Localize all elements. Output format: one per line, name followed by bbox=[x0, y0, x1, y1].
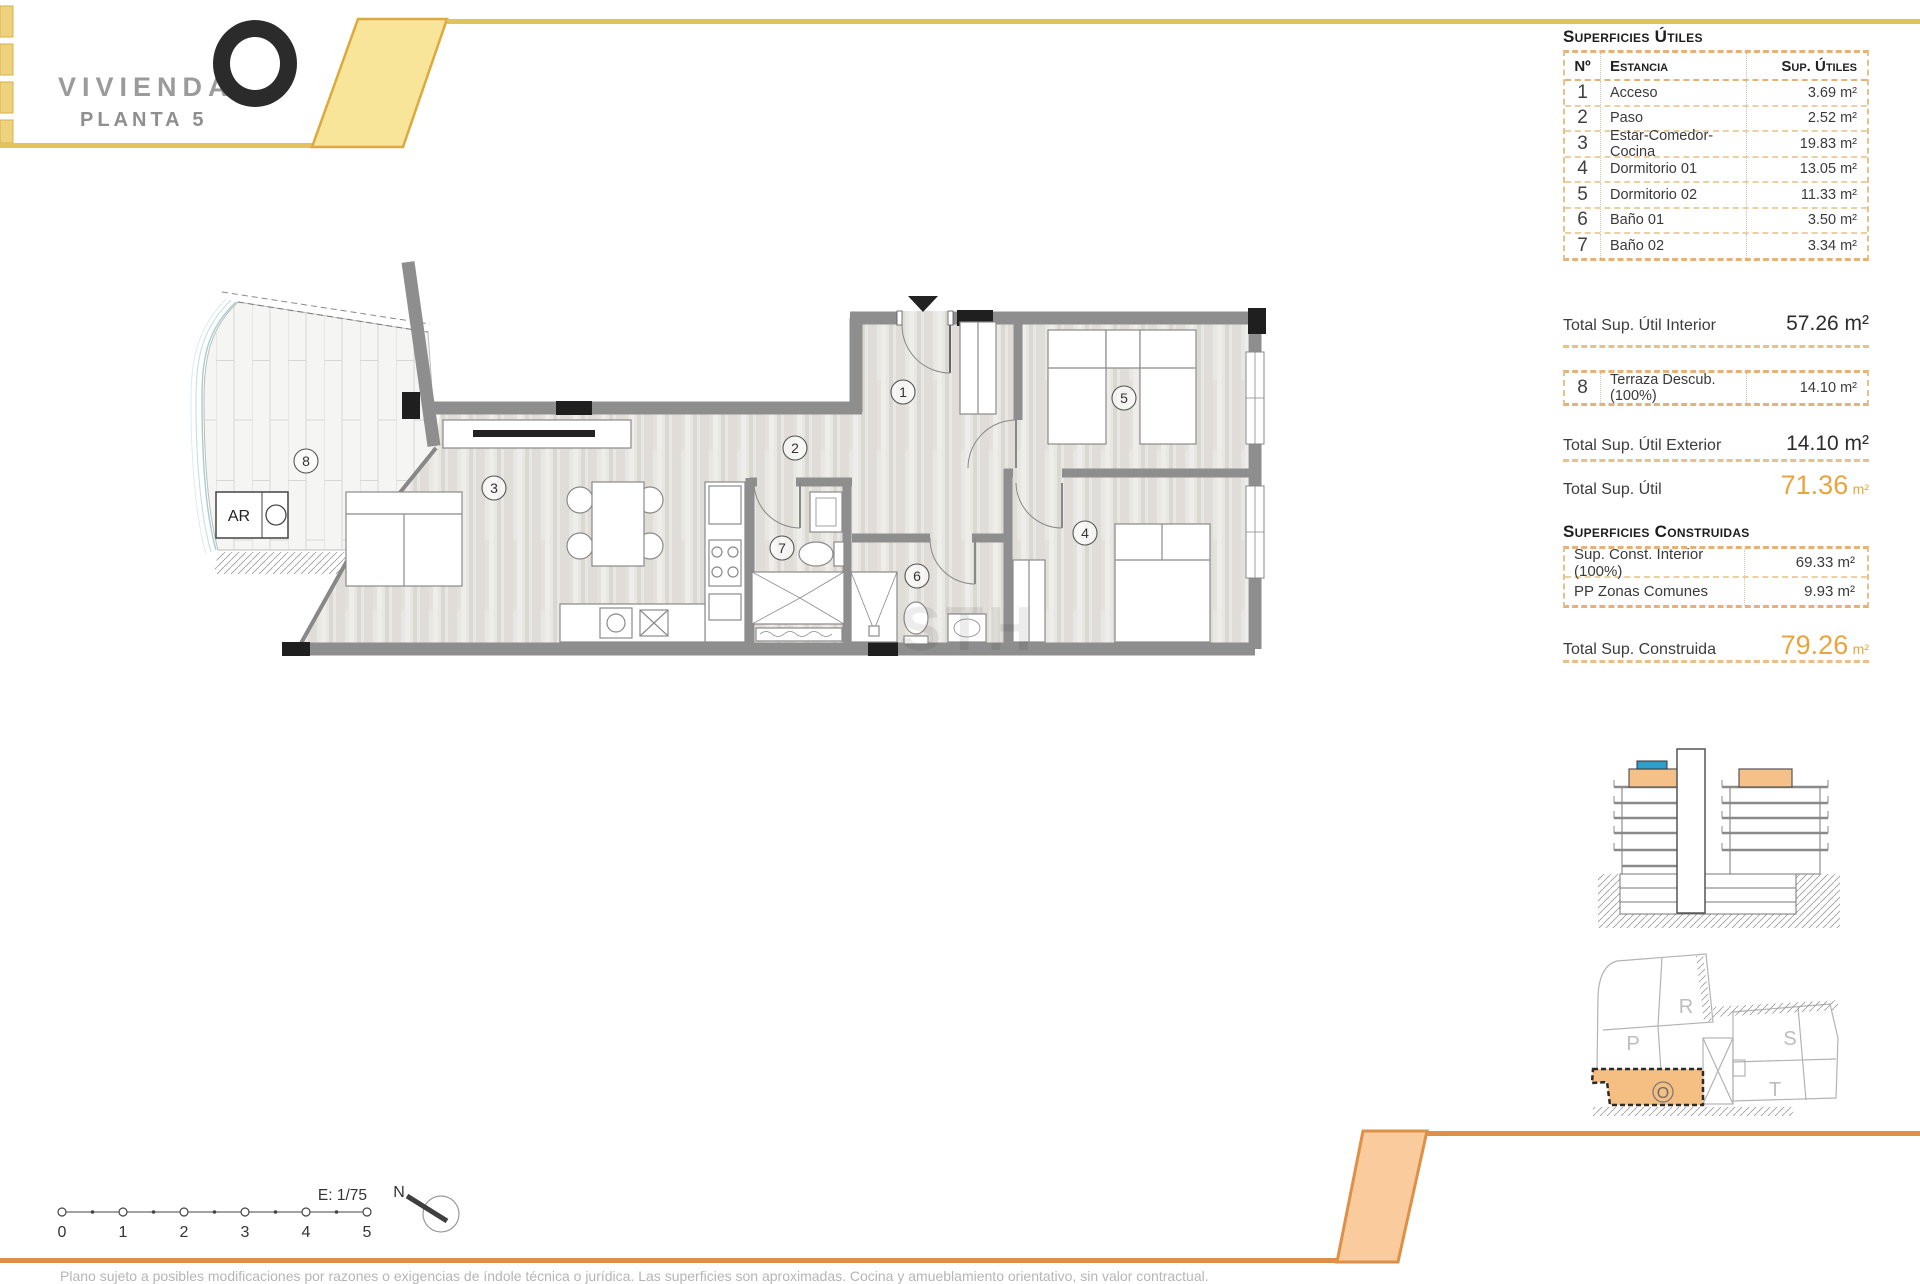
table-row: 4 Dormitorio 01 13.05 m² bbox=[1565, 158, 1867, 184]
pillar bbox=[1248, 308, 1266, 334]
built-title: Superficies Construidas bbox=[1563, 522, 1869, 542]
toilet bbox=[799, 542, 833, 566]
cell-sup: 14.10 m² bbox=[1747, 373, 1865, 403]
kitchen-counter bbox=[705, 482, 745, 642]
total-interior-line: Total Sup. Útil Interior 57.26 m² bbox=[1563, 312, 1869, 336]
room-label-6: 6 bbox=[905, 564, 929, 588]
total-built-line: Total Sup. Construida 79.26 m² bbox=[1563, 630, 1869, 661]
unit-letter-o: O bbox=[1657, 1085, 1669, 1102]
pillar bbox=[868, 642, 898, 656]
room-label-1: 1 bbox=[891, 380, 915, 404]
pillar bbox=[556, 401, 592, 415]
table-row: 8 Terraza Descub.(100%) 14.10 m² bbox=[1565, 373, 1867, 403]
building-section-diagram bbox=[1598, 749, 1840, 928]
room-label-2: 2 bbox=[783, 436, 807, 460]
surfaces-title: Superficies Útiles bbox=[1563, 27, 1869, 47]
cell-room: Paso bbox=[1601, 107, 1747, 131]
total-exterior-line: Total Sup. Útil Exterior 14.10 m² bbox=[1563, 432, 1869, 456]
total-unit: m² bbox=[1853, 641, 1869, 657]
room-label-8: 8 bbox=[294, 449, 318, 473]
brand-title: VIVIENDA bbox=[58, 72, 234, 103]
cell-room: Dormitorio 01 bbox=[1601, 158, 1747, 182]
brand-o-logo-icon bbox=[213, 20, 297, 107]
cell-n: 5 bbox=[1565, 183, 1601, 207]
ar-label: AR bbox=[228, 508, 250, 525]
room-number: 1 bbox=[899, 384, 907, 400]
cell-sup: 3.50 m² bbox=[1747, 209, 1865, 233]
table-row: PP Zonas Comunes 9.93 m² bbox=[1565, 578, 1867, 605]
pillar bbox=[282, 642, 310, 656]
total-value: 57.26 m² bbox=[1786, 312, 1869, 336]
bath-step bbox=[756, 628, 842, 641]
cell-room: Baño 01 bbox=[1601, 209, 1747, 233]
scale-tick: 1 bbox=[119, 1224, 128, 1241]
scale-tick: 0 bbox=[58, 1224, 67, 1241]
fridge bbox=[709, 486, 741, 524]
total-label: Total Sup. Útil Exterior bbox=[1563, 437, 1721, 455]
col-header-sup: Sup. Útiles bbox=[1747, 53, 1865, 79]
site-key-plan: R P S T O bbox=[1592, 954, 1838, 1116]
total-value-orange: 71.36 bbox=[1781, 470, 1849, 500]
room-number: 8 bbox=[302, 453, 310, 469]
ar-unit: AR bbox=[216, 492, 288, 538]
yellow-parallelogram bbox=[312, 19, 447, 147]
yellow-rule-left bbox=[0, 143, 314, 148]
total-label: Total Sup. Construida bbox=[1563, 641, 1716, 659]
surfaces-table: Nº Estancia Sup. Útiles 1 Acceso 3.69 m²… bbox=[1563, 50, 1869, 261]
orange-rule-right bbox=[1427, 1131, 1920, 1136]
terrace-row: 8 Terraza Descub.(100%) 14.10 m² bbox=[1563, 370, 1869, 406]
cell-n: 2 bbox=[1565, 107, 1601, 131]
north-arrow-icon: N bbox=[393, 1184, 459, 1232]
edge-dash bbox=[0, 44, 13, 75]
edge-dash bbox=[0, 120, 13, 143]
table-row: 6 Baño 01 3.50 m² bbox=[1565, 209, 1867, 235]
section-core-shaft bbox=[1677, 749, 1705, 913]
total-label: Total Sup. Útil bbox=[1563, 481, 1662, 499]
cell-n: 1 bbox=[1565, 81, 1601, 105]
orange-parallelogram bbox=[1337, 1131, 1427, 1262]
room-number: 5 bbox=[1120, 390, 1128, 406]
table-row: 7 Baño 02 3.34 m² bbox=[1565, 234, 1867, 258]
total-unit: m² bbox=[1853, 481, 1869, 497]
room-label-5: 5 bbox=[1112, 386, 1136, 410]
ground-hatch bbox=[214, 552, 352, 574]
room-number: 2 bbox=[791, 440, 799, 456]
sofa bbox=[346, 492, 462, 586]
single-bed bbox=[1140, 330, 1196, 444]
block-letter-r: R bbox=[1679, 996, 1693, 1018]
site-hatch bbox=[1713, 1000, 1838, 1017]
cell-room: Terraza Descub.(100%) bbox=[1601, 373, 1747, 403]
disclaimer-text: Plano sujeto a posibles modificaciones p… bbox=[60, 1268, 1740, 1284]
pillar bbox=[402, 392, 420, 419]
room-number: 4 bbox=[1081, 525, 1089, 541]
room-number: 7 bbox=[778, 540, 786, 556]
cell-room: Dormitorio 02 bbox=[1601, 183, 1747, 207]
room-number: 3 bbox=[490, 480, 498, 496]
north-label: N bbox=[393, 1184, 405, 1201]
door-jamb bbox=[897, 311, 902, 325]
scale-tick: 4 bbox=[302, 1224, 311, 1241]
block-letter-s: S bbox=[1783, 1028, 1796, 1050]
basement bbox=[1620, 874, 1796, 914]
oven bbox=[709, 594, 741, 620]
stove bbox=[709, 540, 741, 586]
room-number: 6 bbox=[913, 568, 921, 584]
table-row: 1 Acceso 3.69 m² bbox=[1565, 81, 1867, 107]
edge-dash bbox=[0, 82, 13, 113]
col-header-room: Estancia bbox=[1601, 53, 1747, 79]
total-label: Total Sup. Útil Interior bbox=[1563, 317, 1716, 335]
dashed-separator bbox=[1563, 459, 1869, 462]
total-util-line: Total Sup. Útil 71.36 m² bbox=[1563, 470, 1869, 501]
scale-tick: 3 bbox=[241, 1224, 250, 1241]
highlighted-floor bbox=[1629, 769, 1678, 787]
dashed-separator bbox=[1563, 660, 1869, 663]
watermark: STH bbox=[900, 595, 1036, 664]
dashed-separator bbox=[1563, 345, 1869, 348]
cell-room: Baño 02 bbox=[1601, 234, 1747, 258]
cell-sup: 9.93 m² bbox=[1745, 578, 1863, 605]
scale-ratio-label: E: 1/75 bbox=[318, 1187, 367, 1204]
cell-sup: 19.83 m² bbox=[1747, 132, 1865, 156]
cell-n: 6 bbox=[1565, 209, 1601, 233]
col-header-n: Nº bbox=[1565, 53, 1601, 79]
room-label-7: 7 bbox=[770, 536, 794, 560]
built-table: Sup. Const. Interior (100%) 69.33 m² PP … bbox=[1563, 546, 1869, 608]
cell-sup: 3.69 m² bbox=[1747, 81, 1865, 105]
door-opening bbox=[902, 311, 948, 325]
sideboard bbox=[443, 420, 631, 448]
cell-sup: 2.52 m² bbox=[1747, 107, 1865, 131]
cell-n: 7 bbox=[1565, 234, 1601, 258]
block-outline-pr bbox=[1597, 954, 1713, 1071]
total-value-orange: 79.26 bbox=[1781, 630, 1849, 660]
nightstand bbox=[1106, 330, 1140, 368]
floor-plan: AR bbox=[191, 262, 1266, 664]
scale-tick: 2 bbox=[180, 1224, 189, 1241]
scale-tick: 5 bbox=[363, 1224, 372, 1241]
block-outline-st bbox=[1733, 1004, 1838, 1101]
shower-drain bbox=[869, 626, 879, 636]
section-right-tower bbox=[1722, 769, 1828, 874]
kitchen-lower-counter bbox=[560, 604, 705, 642]
entrance-marker-icon bbox=[908, 296, 938, 312]
table-header-row: Nº Estancia Sup. Útiles bbox=[1565, 53, 1867, 81]
cell-room: Sup. Const. Interior (100%) bbox=[1565, 549, 1745, 576]
room-label-4: 4 bbox=[1073, 521, 1097, 545]
cell-sup: 3.34 m² bbox=[1747, 234, 1865, 258]
cell-n: 3 bbox=[1565, 132, 1601, 156]
room-label-3: 3 bbox=[482, 476, 506, 500]
table-row: 3 Estar-Comedor-Cocina 19.83 m² bbox=[1565, 132, 1867, 158]
washer bbox=[600, 608, 632, 638]
cell-sup: 13.05 m² bbox=[1747, 158, 1865, 182]
cell-n: 4 bbox=[1565, 158, 1601, 182]
edge-dash bbox=[0, 6, 13, 37]
drain-circle bbox=[266, 505, 286, 525]
cell-sup: 11.33 m² bbox=[1747, 183, 1865, 207]
terrace-highlight bbox=[1637, 761, 1667, 769]
site-hatch bbox=[1593, 1107, 1793, 1116]
scale-bar: 0 1 2 3 4 5 E: 1/75 bbox=[58, 1187, 372, 1241]
block-letter-p: P bbox=[1626, 1033, 1639, 1055]
cell-room: Acceso bbox=[1601, 81, 1747, 105]
toilet-tank bbox=[834, 542, 844, 566]
orange-rule-left bbox=[0, 1258, 1340, 1263]
floor-title: PLANTA 5 bbox=[80, 109, 208, 132]
block-letter-t: T bbox=[1769, 1079, 1781, 1101]
door-jamb bbox=[948, 311, 953, 325]
table-row: Sup. Const. Interior (100%) 69.33 m² bbox=[1565, 549, 1867, 578]
highlighted-unit-o bbox=[1592, 1069, 1703, 1105]
cell-n: 8 bbox=[1565, 373, 1601, 403]
highlighted-floor bbox=[1739, 769, 1792, 787]
cell-room: Estar-Comedor-Cocina bbox=[1601, 132, 1747, 156]
total-value: 14.10 m² bbox=[1786, 432, 1869, 456]
bottom-orange-decoration bbox=[0, 1131, 1920, 1263]
yellow-rule-right bbox=[447, 19, 1920, 24]
cell-room: PP Zonas Comunes bbox=[1565, 578, 1745, 605]
single-bed bbox=[1048, 330, 1106, 444]
table-row: 5 Dormitorio 02 11.33 m² bbox=[1565, 183, 1867, 209]
cell-sup: 69.33 m² bbox=[1745, 549, 1863, 576]
